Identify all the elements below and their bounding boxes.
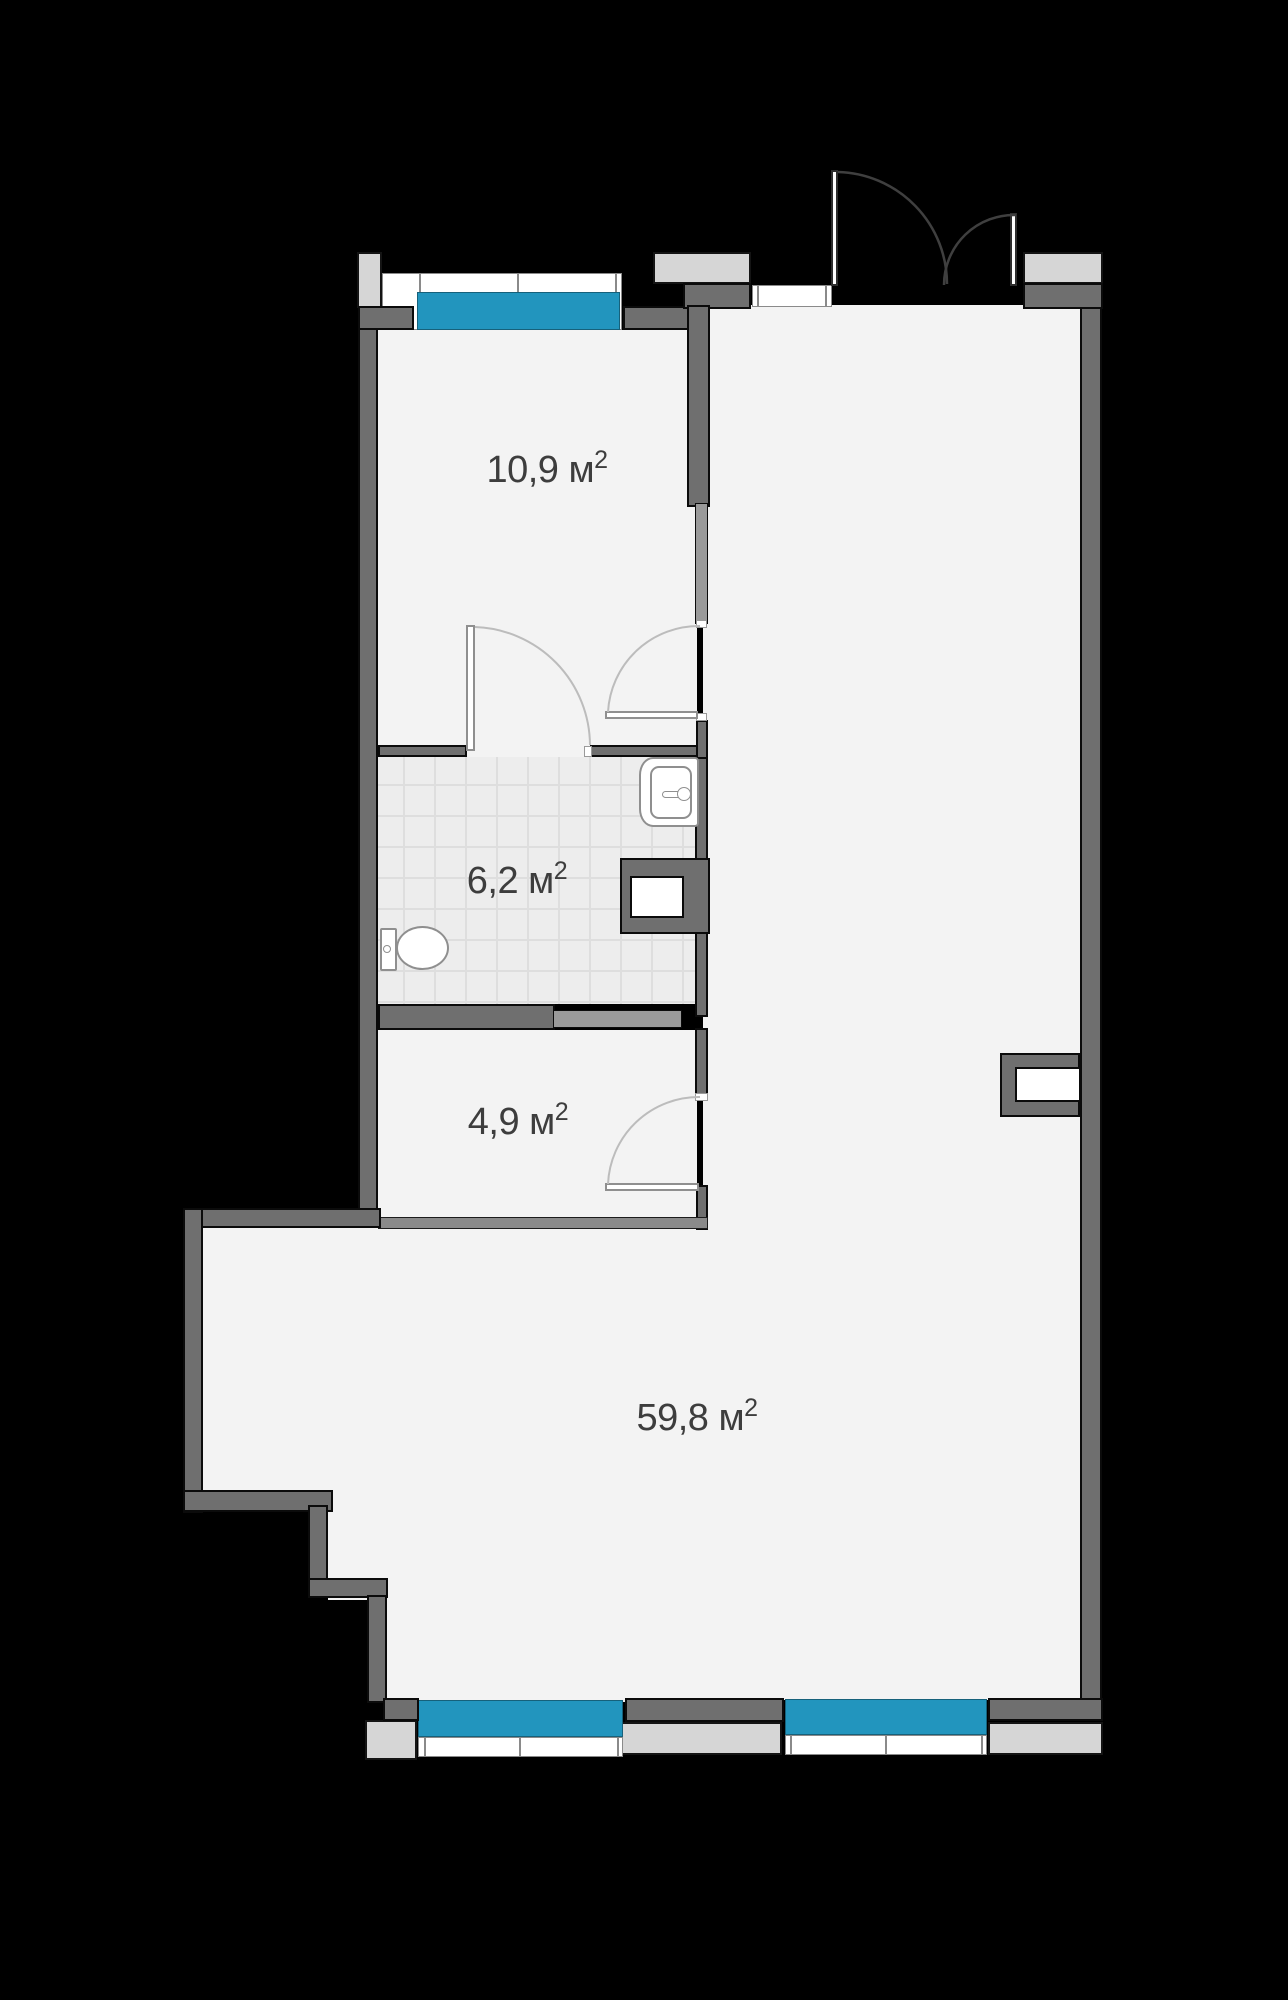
balcony-slab <box>620 1722 782 1755</box>
balcony-slab <box>357 252 382 308</box>
wall-step <box>367 1595 387 1703</box>
area-value: 59,8 м <box>636 1397 744 1439</box>
bathroom-wall <box>590 745 707 757</box>
bathroom-wall <box>378 745 467 757</box>
balcony-slab <box>988 1722 1103 1755</box>
bathroom-door-leaf <box>466 625 475 751</box>
entry-sidelight <box>752 285 832 307</box>
balcony-slab <box>365 1720 417 1760</box>
window-glass <box>417 292 620 330</box>
window-mullion <box>885 1736 887 1754</box>
window-mullion <box>981 1736 983 1754</box>
wall-bottom <box>383 1698 419 1721</box>
bathroom-wall-bottom-light <box>553 1010 682 1028</box>
wall <box>183 1208 381 1228</box>
window-frame <box>785 1735 987 1755</box>
wall <box>623 306 689 330</box>
toilet-bowl <box>396 926 449 970</box>
bathroom-wall-bottom <box>378 1004 555 1030</box>
window-mullion <box>519 1738 521 1756</box>
wall-cap <box>695 1093 708 1101</box>
wall-right-outer <box>1080 283 1102 1720</box>
wall-left-outer <box>358 328 378 1228</box>
wall-divider <box>687 305 710 507</box>
living-room-floor <box>387 1597 708 1702</box>
toilet-flush-button <box>383 945 391 953</box>
entrance-door-leaf <box>831 170 838 286</box>
area-value: 6,2 м <box>467 860 554 902</box>
room-top-floor <box>378 330 697 757</box>
area-sup: 2 <box>594 446 607 474</box>
entrance-door-arc <box>944 215 1016 285</box>
floor-plan: 10,9 м2 6,2 м2 4,9 м2 59,8 м2 <box>0 0 1288 2000</box>
entrance-door-leaf <box>1010 213 1017 286</box>
living-room-area-label: 59,8 м2 <box>636 1399 757 1437</box>
hallway-area-label: 4,9 м2 <box>468 1103 568 1141</box>
hallway-door-leaf <box>605 1183 699 1191</box>
area-sup: 2 <box>554 857 567 885</box>
balcony-slab <box>653 252 751 284</box>
window-mullion <box>757 286 759 306</box>
wall-step <box>308 1505 328 1582</box>
window-mullion <box>617 1738 619 1756</box>
wall-left-outer <box>183 1208 203 1513</box>
area-value: 4,9 м <box>468 1101 555 1143</box>
window-mullion <box>825 286 827 306</box>
wall <box>358 306 414 330</box>
wall-cap <box>584 746 592 757</box>
room-area-label: 10,9 м2 <box>486 451 607 489</box>
window-glass <box>418 1700 623 1737</box>
window-mullion <box>790 1736 792 1754</box>
hallway-partition <box>378 1217 708 1229</box>
living-room-floor <box>703 305 1082 1700</box>
window-frame <box>418 1737 623 1757</box>
living-room-floor <box>202 1227 708 1497</box>
entrance-door-arc <box>838 172 947 284</box>
wall-bottom <box>988 1698 1103 1721</box>
wall-divider-thin <box>695 503 708 624</box>
hallway-wall-stub <box>695 1028 708 1098</box>
wall <box>696 720 708 760</box>
bathroom-duct-void <box>630 876 684 918</box>
area-value: 10,9 м <box>486 449 594 491</box>
wall-cap <box>696 620 707 628</box>
wall-niche-void <box>1015 1067 1081 1102</box>
bathroom-area-label: 6,2 м2 <box>467 862 567 900</box>
room-door-leaf <box>605 711 698 719</box>
wall-bottom <box>625 1698 784 1722</box>
window-glass <box>785 1699 987 1735</box>
window-mullion <box>424 1738 426 1756</box>
area-sup: 2 <box>555 1098 568 1126</box>
area-sup: 2 <box>744 1394 757 1422</box>
wall <box>1023 283 1103 309</box>
sink-faucet-knob <box>677 787 691 801</box>
balcony-slab <box>1023 252 1103 284</box>
